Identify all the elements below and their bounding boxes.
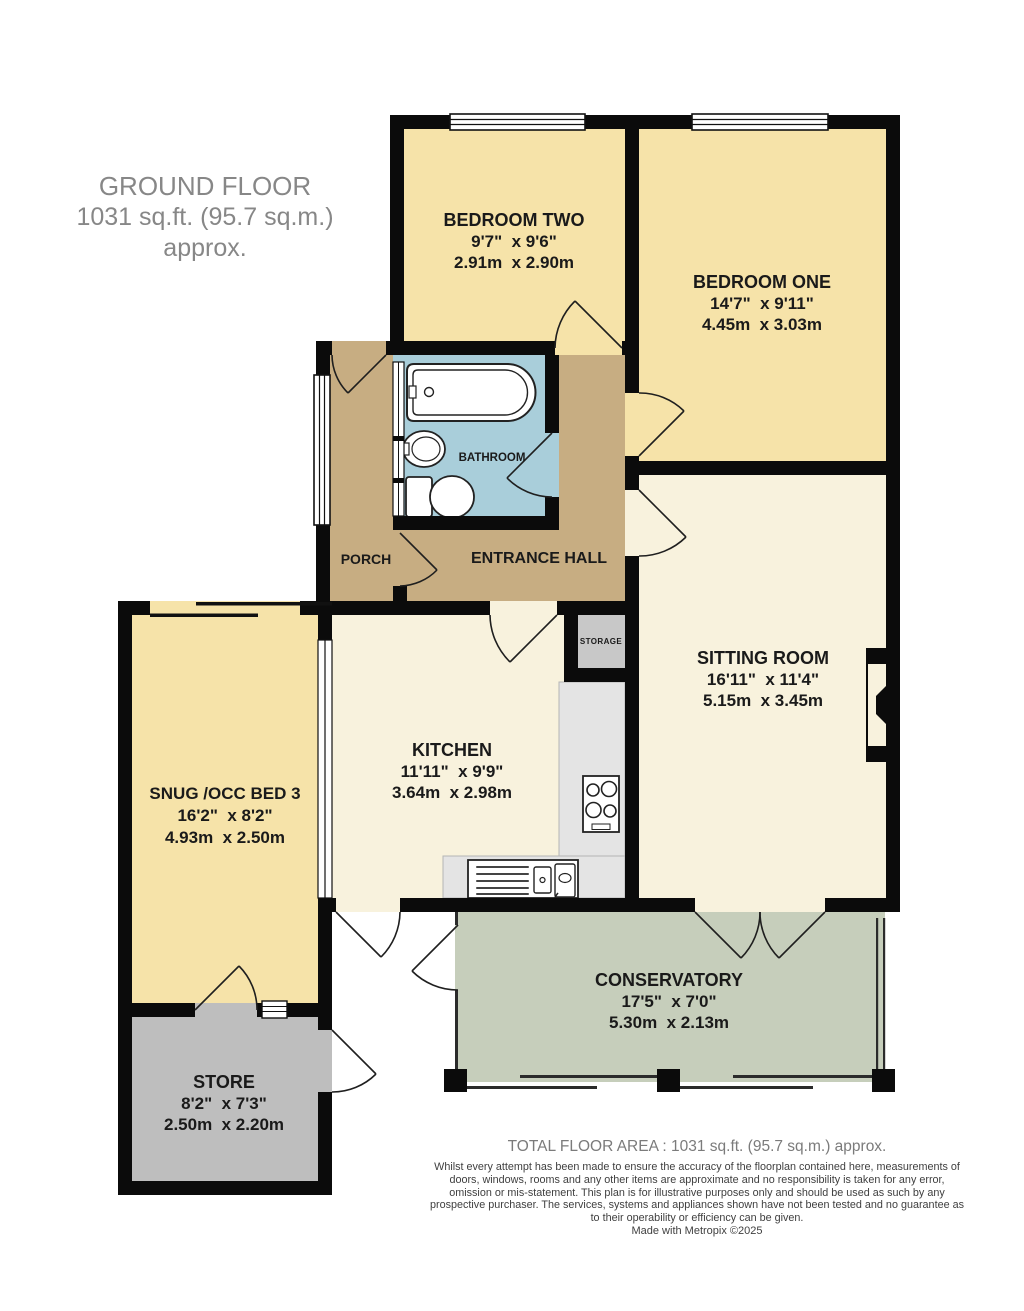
floorplan-page: GROUND FLOOR 1031 sq.ft. (95.7 sq.m.) ap… (0, 0, 1024, 1311)
conservatory-post (872, 1069, 895, 1092)
plan-header: GROUND FLOOR 1031 sq.ft. (95.7 sq.m.) ap… (40, 170, 370, 264)
hob (583, 776, 619, 832)
store-wall-window (262, 1001, 287, 1018)
conservatory-post (444, 1069, 467, 1092)
room-label-storage: STORAGE (580, 637, 622, 646)
floor-area-subtitle: 1031 sq.ft. (95.7 sq.m.) approx. (40, 202, 370, 264)
room-label-store: STORE 8'2" x 7'3" 2.50m x 2.20m (164, 1072, 284, 1135)
disclaimer-text: Whilst every attempt has been made to en… (427, 1161, 967, 1225)
room-label-porch: PORCH (341, 551, 392, 567)
conservatory-post (657, 1069, 680, 1092)
kitchen-sink (468, 860, 578, 902)
fireplace (866, 648, 888, 762)
room-label-entrance-hall: ENTRANCE HALL (471, 550, 607, 568)
room-label-bedroom-one: BEDROOM ONE 14'7" x 9'11" 4.45m x 3.03m (693, 272, 831, 335)
plan-footer: TOTAL FLOOR AREA : 1031 sq.ft. (95.7 sq.… (427, 1138, 967, 1238)
bathtub (407, 364, 536, 421)
conservatory-side-door (412, 925, 458, 990)
porch-window (314, 375, 330, 525)
room-label-conservatory: CONSERVATORY 17'5" x 7'0" 5.30m x 2.13m (595, 970, 743, 1033)
room-label-snug: SNUG /OCC BED 3 16'2" x 8'2" 4.93m x 2.5… (149, 783, 300, 849)
room-label-bedroom-two: BEDROOM TWO 9'7" x 9'6" 2.91m x 2.90m (444, 210, 585, 273)
room-label-bathroom: BATHROOM (459, 452, 526, 464)
toilet (406, 476, 474, 518)
bathroom-internal-window (393, 362, 404, 516)
room-label-sitting-room: SITTING ROOM 16'11" x 11'4" 5.15m x 3.45… (697, 648, 829, 711)
bath-tap (409, 386, 416, 398)
snug-kitchen-window (318, 640, 332, 898)
bedroom-one-window (692, 114, 828, 130)
bedroom-two-window (450, 114, 585, 130)
kitchen-back-door (336, 912, 400, 957)
metropix-credit: Made with Metropix ©2025 (427, 1225, 967, 1238)
wash-basin (402, 431, 445, 467)
total-floor-area: TOTAL FLOOR AREA : 1031 sq.ft. (95.7 sq.… (427, 1138, 967, 1156)
floor-title: GROUND FLOOR (40, 170, 370, 202)
room-label-kitchen: KITCHEN 11'11" x 9'9" 3.64m x 2.98m (392, 740, 512, 803)
store-exterior-door (332, 1030, 376, 1092)
